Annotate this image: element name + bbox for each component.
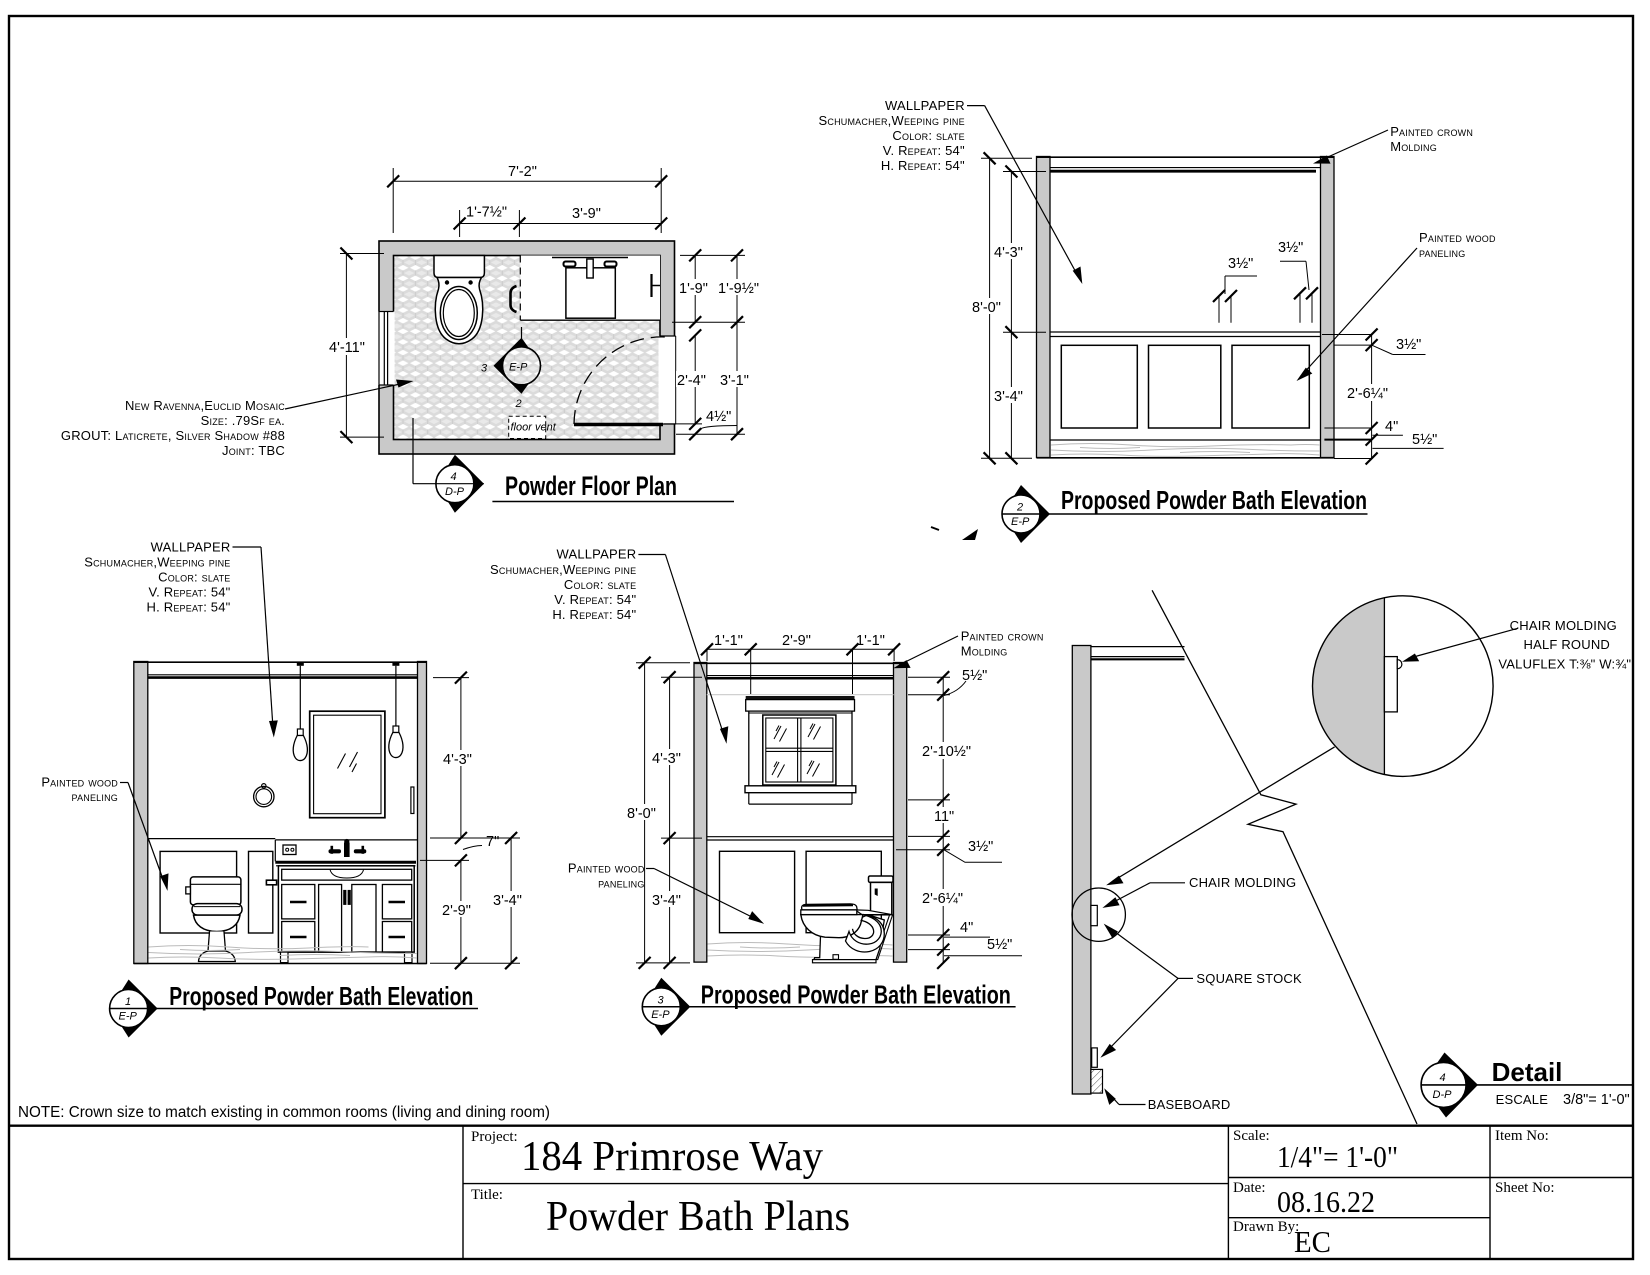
svg-text:Painted wood: Painted wood: [1419, 230, 1496, 245]
svg-text:H. Repeat: 54": H. Repeat: 54": [881, 158, 965, 173]
svg-text:CHAIR MOLDING: CHAIR MOLDING: [1189, 875, 1296, 890]
svg-text:SQUARE STOCK: SQUARE STOCK: [1196, 971, 1302, 986]
svg-text:Painted wood: Painted wood: [568, 861, 645, 876]
svg-text:8'-0": 8'-0": [972, 300, 1001, 316]
svg-text:Color: slate: Color: slate: [564, 577, 636, 592]
svg-text:4'-3": 4'-3": [652, 751, 681, 767]
svg-text:Painted crown: Painted crown: [961, 629, 1044, 644]
svg-text:3½": 3½": [1228, 256, 1253, 272]
svg-text:E-P: E-P: [651, 1009, 670, 1021]
svg-text:3'-4": 3'-4": [652, 893, 681, 909]
svg-text:08.16.22: 08.16.22: [1277, 1184, 1375, 1219]
svg-text:3/8"= 1'-0": 3/8"= 1'-0": [1563, 1092, 1630, 1108]
svg-text:1'-1": 1'-1": [856, 633, 885, 649]
svg-text:8'-0": 8'-0": [627, 806, 656, 822]
svg-text:4½": 4½": [706, 409, 731, 425]
svg-text:V. Repeat: 54": V. Repeat: 54": [554, 592, 636, 607]
svg-text:1'-9": 1'-9": [679, 281, 708, 297]
svg-text:WALLPAPER: WALLPAPER: [151, 540, 231, 555]
svg-text:4: 4: [451, 471, 457, 483]
svg-text:2'-4": 2'-4": [677, 373, 706, 389]
svg-text:Color: slate: Color: slate: [158, 570, 230, 585]
svg-text:E-P: E-P: [509, 362, 528, 374]
svg-text:3'-4": 3'-4": [994, 389, 1023, 405]
svg-text:NOTE: Crown size to match exis: NOTE: Crown size to match existing in co…: [18, 1104, 550, 1121]
svg-text:V. Repeat: 54": V. Repeat: 54": [883, 143, 965, 158]
svg-text:GROUT: Laticrete, Silver Shado: GROUT: Laticrete, Silver Shadow #88: [61, 428, 285, 443]
svg-text:EC: EC: [1294, 1224, 1331, 1259]
svg-text:3½": 3½": [968, 839, 993, 855]
svg-text:Size: .79Sf ea.: Size: .79Sf ea.: [201, 413, 285, 428]
svg-text:D-P: D-P: [445, 486, 465, 498]
svg-text:2'-10½": 2'-10½": [922, 744, 971, 760]
svg-text:5½": 5½": [987, 937, 1012, 953]
svg-text:paneling: paneling: [1419, 245, 1465, 260]
svg-text:D-P: D-P: [1433, 1089, 1453, 1101]
svg-text:3: 3: [481, 363, 488, 375]
svg-text:184 Primrose Way: 184 Primrose Way: [521, 1134, 823, 1180]
svg-text:4'-3": 4'-3": [443, 752, 472, 768]
svg-text:3: 3: [658, 994, 665, 1006]
svg-text:3½": 3½": [1278, 240, 1303, 256]
svg-text:paneling: paneling: [72, 789, 118, 804]
svg-text:E-P: E-P: [1011, 516, 1030, 528]
svg-text:Detail: Detail: [1492, 1057, 1563, 1087]
svg-text:Proposed Powder Bath Elevation: Proposed Powder Bath Elevation: [1061, 485, 1367, 515]
svg-text:Proposed Powder Bath Elevation: Proposed Powder Bath Elevation: [701, 979, 1011, 1009]
svg-text:Drawn By:: Drawn By:: [1233, 1219, 1299, 1235]
svg-text:Painted crown: Painted crown: [1390, 124, 1473, 139]
svg-text:5½": 5½": [962, 668, 987, 684]
svg-text:Molding: Molding: [1390, 139, 1437, 154]
svg-text:H. Repeat: 54": H. Repeat: 54": [552, 607, 636, 622]
svg-text:CHAIR MOLDING: CHAIR MOLDING: [1510, 618, 1617, 633]
svg-text:2: 2: [515, 398, 522, 410]
svg-text:E-P: E-P: [119, 1011, 138, 1023]
svg-text:ESCALE: ESCALE: [1496, 1092, 1549, 1107]
svg-text:paneling: paneling: [598, 876, 644, 891]
svg-text:3½": 3½": [1396, 337, 1421, 353]
svg-text:WALLPAPER: WALLPAPER: [885, 98, 965, 113]
svg-text:Title:: Title:: [471, 1187, 503, 1203]
svg-text:2'-9": 2'-9": [442, 903, 471, 919]
svg-text:7'-2": 7'-2": [508, 164, 537, 180]
svg-text:VALUFLEX T:⅜" W:¾": VALUFLEX T:⅜" W:¾": [1498, 657, 1631, 672]
svg-text:Project:: Project:: [471, 1129, 518, 1145]
svg-text:Schumacher,Weeping pine: Schumacher,Weeping pine: [490, 562, 636, 577]
svg-text:2'-6¼": 2'-6¼": [1347, 386, 1388, 402]
svg-text:4": 4": [1385, 419, 1398, 435]
svg-text:Scale:: Scale:: [1233, 1128, 1270, 1144]
svg-text:Color: slate: Color: slate: [892, 128, 964, 143]
svg-text:Schumacher,Weeping pine: Schumacher,Weeping pine: [84, 555, 230, 570]
svg-text:2'-6¼": 2'-6¼": [922, 891, 963, 907]
svg-text:Schumacher,Weeping pine: Schumacher,Weeping pine: [819, 113, 965, 128]
svg-text:4: 4: [1440, 1072, 1446, 1084]
svg-text:1: 1: [125, 996, 131, 1008]
svg-text:Joint: TBC: Joint: TBC: [222, 443, 285, 458]
svg-text:BASEBOARD: BASEBOARD: [1148, 1097, 1231, 1112]
svg-text:3'-4": 3'-4": [493, 893, 522, 909]
svg-text:11": 11": [934, 809, 954, 825]
svg-text:H. Repeat: 54": H. Repeat: 54": [147, 600, 231, 615]
svg-text:1/4"= 1'-0": 1/4"= 1'-0": [1277, 1139, 1398, 1174]
svg-text:5½": 5½": [1412, 432, 1437, 448]
svg-text:HALF ROUND: HALF ROUND: [1523, 637, 1610, 652]
svg-text:New Ravenna,Euclid Mosaic: New Ravenna,Euclid Mosaic: [125, 398, 285, 413]
svg-text:V. Repeat: 54": V. Repeat: 54": [148, 585, 230, 600]
svg-text:Powder Floor Plan: Powder Floor Plan: [505, 471, 677, 501]
svg-text:3'-1": 3'-1": [720, 373, 749, 389]
svg-text:1'-9½": 1'-9½": [718, 281, 759, 297]
svg-text:floor vent: floor vent: [511, 422, 557, 434]
svg-text:4": 4": [960, 920, 973, 936]
svg-text:Molding: Molding: [961, 644, 1008, 659]
svg-text:7": 7": [486, 834, 499, 850]
svg-text:4'-11": 4'-11": [329, 340, 365, 356]
svg-text:3'-9": 3'-9": [572, 206, 601, 222]
svg-text:4'-3": 4'-3": [994, 245, 1023, 261]
svg-text:Date:: Date:: [1233, 1180, 1265, 1196]
svg-text:Painted wood: Painted wood: [41, 775, 118, 790]
svg-text:WALLPAPER: WALLPAPER: [556, 547, 636, 562]
svg-text:1'-7½": 1'-7½": [466, 205, 507, 221]
svg-text:Proposed Powder Bath Elevation: Proposed Powder Bath Elevation: [169, 981, 473, 1011]
svg-text:2'-9": 2'-9": [782, 633, 811, 649]
svg-text:1'-1": 1'-1": [714, 633, 743, 649]
svg-text:2: 2: [1016, 502, 1023, 514]
svg-text:Powder Bath Plans: Powder Bath Plans: [546, 1194, 850, 1240]
svg-text:Sheet No:: Sheet No:: [1495, 1180, 1555, 1196]
svg-text:Item No:: Item No:: [1495, 1128, 1549, 1144]
